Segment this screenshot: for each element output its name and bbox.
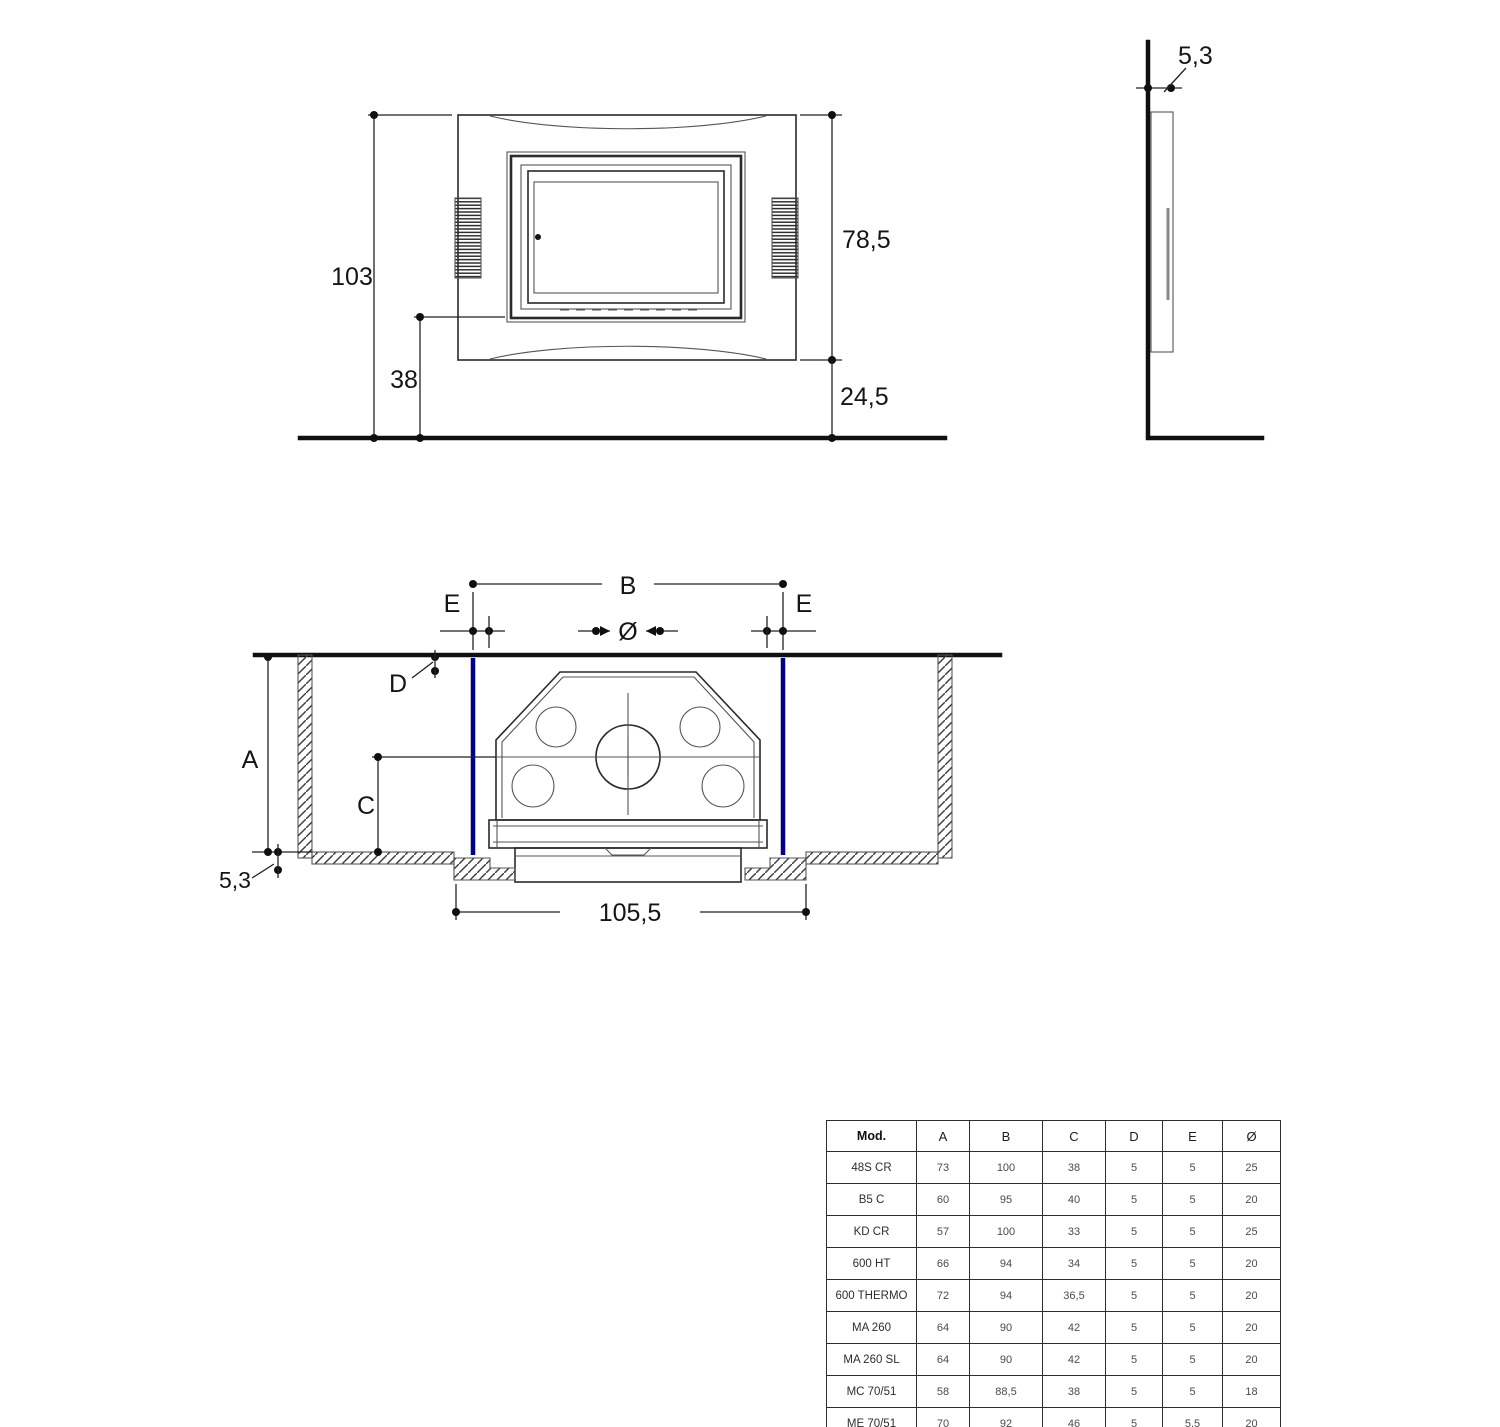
value-B: 92 <box>970 1408 1043 1427</box>
value-E: 5,5 <box>1163 1408 1223 1427</box>
front-top-valance <box>490 116 766 129</box>
value-diameter: 20 <box>1223 1344 1281 1376</box>
value-D: 5 <box>1106 1248 1163 1280</box>
value-D: 5 <box>1106 1280 1163 1312</box>
table-row: ME 70/51 70 92 46 5 5,5 20 <box>827 1408 1281 1427</box>
table-row: MA 260 SL 64 90 42 5 5 20 <box>827 1344 1281 1376</box>
value-D: 5 <box>1106 1312 1163 1344</box>
flue-circle-bottom-left <box>512 765 554 807</box>
value-B: 90 <box>970 1344 1043 1376</box>
model-name: 600 THERMO <box>827 1280 917 1312</box>
dim-label-diameter: Ø <box>618 618 637 646</box>
value-A: 57 <box>917 1216 970 1248</box>
model-name: 48S CR <box>827 1152 917 1184</box>
value-E: 5 <box>1163 1248 1223 1280</box>
model-name: B5 C <box>827 1184 917 1216</box>
drawing-svg: 103 38 78,5 24,5 <box>0 0 1500 1110</box>
value-B: 94 <box>970 1280 1043 1312</box>
dim-label-B: B <box>620 572 637 600</box>
col-header-B: B <box>970 1121 1043 1152</box>
door-frame-mid <box>521 165 731 309</box>
value-A: 73 <box>917 1152 970 1184</box>
front-bottom-valance <box>490 346 766 359</box>
door-frame-band <box>511 156 741 318</box>
col-header-diameter: Ø <box>1223 1121 1281 1152</box>
flue-circle-top-left <box>536 707 576 747</box>
dim-label-105-5: 105,5 <box>599 899 662 927</box>
value-C: 36,5 <box>1043 1280 1106 1312</box>
model-name: KD CR <box>827 1216 917 1248</box>
value-C: 38 <box>1043 1376 1106 1408</box>
grille-left <box>455 198 481 278</box>
plan-view: B E E Ø D <box>219 572 1000 927</box>
value-E: 5 <box>1163 1152 1223 1184</box>
door-glass <box>534 182 718 293</box>
value-D: 5 <box>1106 1216 1163 1248</box>
dim-label-C: C <box>357 792 375 820</box>
col-header-mod: Mod. <box>827 1121 917 1152</box>
model-name: MC 70/51 <box>827 1376 917 1408</box>
value-B: 95 <box>970 1184 1043 1216</box>
value-E: 5 <box>1163 1312 1223 1344</box>
value-diameter: 20 <box>1223 1312 1281 1344</box>
niche-floor-right <box>806 852 938 864</box>
model-name: MA 260 <box>827 1312 917 1344</box>
value-D: 5 <box>1106 1152 1163 1184</box>
value-B: 90 <box>970 1312 1043 1344</box>
value-D: 5 <box>1106 1376 1163 1408</box>
dim-bottom-height: 24,5 <box>828 360 889 442</box>
value-B: 94 <box>970 1248 1043 1280</box>
value-A: 64 <box>917 1312 970 1344</box>
dim-label-38: 38 <box>390 366 418 394</box>
value-diameter: 25 <box>1223 1216 1281 1248</box>
table-row: KD CR 57 100 33 5 5 25 <box>827 1216 1281 1248</box>
door-handle-dot <box>535 234 541 240</box>
insert-base-panel <box>515 848 741 882</box>
table-row: 600 HT 66 94 34 5 5 20 <box>827 1248 1281 1280</box>
dim-label-D: D <box>389 670 407 698</box>
model-name: 600 HT <box>827 1248 917 1280</box>
value-C: 40 <box>1043 1184 1106 1216</box>
dim-label-E-right: E <box>796 590 813 618</box>
value-diameter: 25 <box>1223 1152 1281 1184</box>
side-wall-floor <box>1148 42 1262 438</box>
value-C: 34 <box>1043 1248 1106 1280</box>
value-A: 72 <box>917 1280 970 1312</box>
side-view: 5,3 <box>1136 42 1262 438</box>
dim-overall-width: 105,5 <box>452 884 810 927</box>
niche-wall-left <box>298 655 312 858</box>
table-row: 48S CR 73 100 38 5 5 25 <box>827 1152 1281 1184</box>
dim-label-78-5: 78,5 <box>842 226 891 254</box>
value-B: 100 <box>970 1152 1043 1184</box>
flue-circle-bottom-right <box>702 765 744 807</box>
model-name: ME 70/51 <box>827 1408 917 1427</box>
value-E: 5 <box>1163 1344 1223 1376</box>
value-D: 5 <box>1106 1408 1163 1427</box>
value-C: 33 <box>1043 1216 1106 1248</box>
value-E: 5 <box>1163 1376 1223 1408</box>
value-C: 42 <box>1043 1344 1106 1376</box>
dim-label-24-5: 24,5 <box>840 383 889 411</box>
value-A: 60 <box>917 1184 970 1216</box>
door-frame-outer <box>507 152 745 322</box>
dim-label-103: 103 <box>331 263 373 291</box>
dim-label-5-3-plan: 5,3 <box>219 867 251 893</box>
col-header-C: C <box>1043 1121 1106 1152</box>
value-diameter: 18 <box>1223 1376 1281 1408</box>
dim-frame-height: 78,5 <box>800 111 891 364</box>
value-diameter: 20 <box>1223 1184 1281 1216</box>
table-row: MC 70/51 58 88,5 38 5 5 18 <box>827 1376 1281 1408</box>
value-diameter: 20 <box>1223 1408 1281 1427</box>
table-row: MA 260 64 90 42 5 5 20 <box>827 1312 1281 1344</box>
table-row: 600 THERMO 72 94 36,5 5 5 20 <box>827 1280 1281 1312</box>
corner-bracket-right <box>745 858 806 880</box>
value-B: 100 <box>970 1216 1043 1248</box>
col-header-D: D <box>1106 1121 1163 1152</box>
corner-bracket-left <box>454 858 515 880</box>
door-frame-inner <box>528 171 724 303</box>
value-E: 5 <box>1163 1216 1223 1248</box>
technical-drawing-page: 103 38 78,5 24,5 <box>0 0 1500 1427</box>
value-C: 38 <box>1043 1152 1106 1184</box>
dim-label-A: A <box>242 746 259 774</box>
dim-label-5-3-side: 5,3 <box>1178 42 1213 70</box>
dim-label-E-left: E <box>444 590 461 618</box>
value-A: 70 <box>917 1408 970 1427</box>
front-view: 103 38 78,5 24,5 <box>300 111 945 442</box>
dim-flue-diameter: Ø <box>578 618 678 646</box>
dim-inner-height: 38 <box>390 313 505 442</box>
side-frame-profile <box>1151 112 1173 352</box>
value-diameter: 20 <box>1223 1248 1281 1280</box>
value-A: 58 <box>917 1376 970 1408</box>
insert-body-top <box>496 672 760 820</box>
value-E: 5 <box>1163 1184 1223 1216</box>
col-header-E: E <box>1163 1121 1223 1152</box>
value-C: 46 <box>1043 1408 1106 1427</box>
grille-right <box>772 198 798 278</box>
dimensions-table: Mod. A B C D E Ø 48S CR 73 100 38 5 5 25… <box>826 1120 1281 1427</box>
value-diameter: 20 <box>1223 1280 1281 1312</box>
value-A: 66 <box>917 1248 970 1280</box>
insert-front-frame <box>489 820 767 848</box>
value-A: 64 <box>917 1344 970 1376</box>
value-B: 88,5 <box>970 1376 1043 1408</box>
value-C: 42 <box>1043 1312 1106 1344</box>
flue-circle-top-right <box>680 707 720 747</box>
model-name: MA 260 SL <box>827 1344 917 1376</box>
table-row: B5 C 60 95 40 5 5 20 <box>827 1184 1281 1216</box>
niche-wall-right <box>938 655 952 858</box>
value-E: 5 <box>1163 1280 1223 1312</box>
table-header-row: Mod. A B C D E Ø <box>827 1121 1281 1152</box>
niche-floor-left <box>312 852 454 864</box>
value-D: 5 <box>1106 1344 1163 1376</box>
value-D: 5 <box>1106 1184 1163 1216</box>
col-header-A: A <box>917 1121 970 1152</box>
